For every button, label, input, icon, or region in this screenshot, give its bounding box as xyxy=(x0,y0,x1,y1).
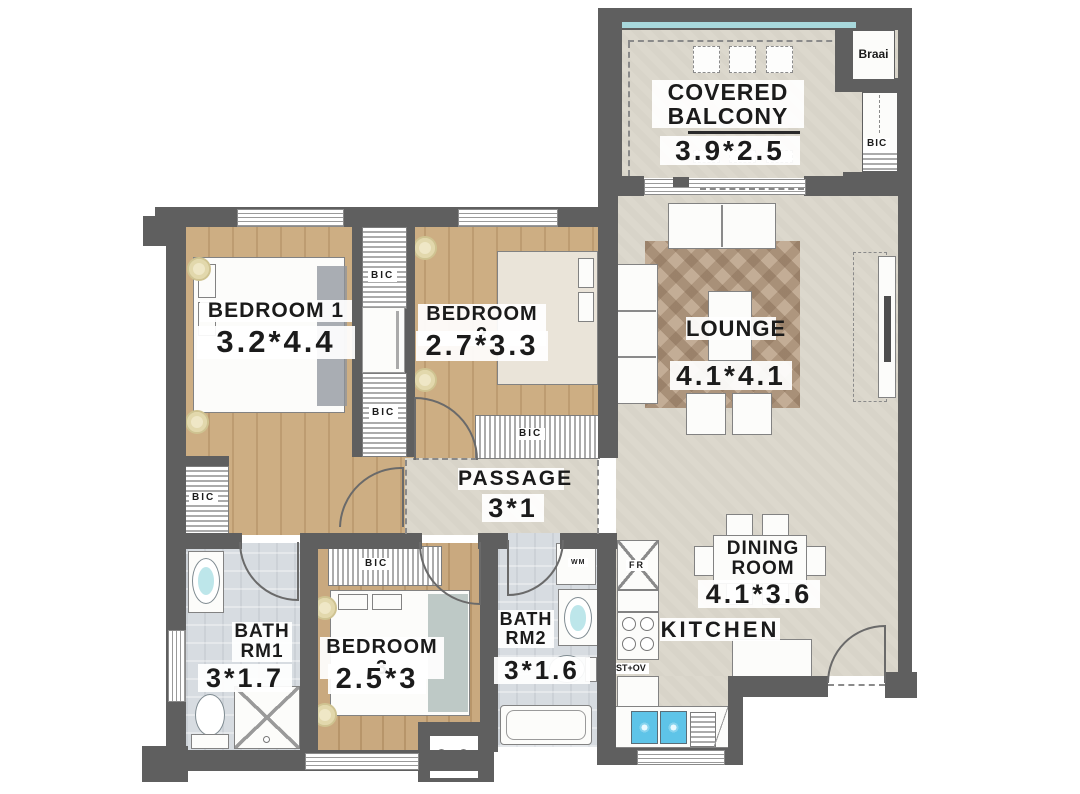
room-dims-bedroom2: 2.7*3.3 xyxy=(416,331,548,361)
room-label-dining: DINING ROOM xyxy=(722,539,804,579)
room-label-lounge: LOUNGE xyxy=(686,317,776,340)
pillow-icon xyxy=(578,258,594,288)
ceiling-light-icon xyxy=(185,410,209,434)
room-label-bath2: BATH RM2 xyxy=(498,610,554,648)
wall-segment xyxy=(835,78,898,92)
bic-cupboard xyxy=(362,227,407,309)
entrance-cabinet-icon xyxy=(732,639,812,677)
balcony-stool-icon xyxy=(766,46,793,73)
floor-plan: FR ST+OV BIC BIC BIC BIC BIC xyxy=(0,0,1080,794)
glazing-strip xyxy=(622,22,856,28)
pillow-icon xyxy=(338,594,368,610)
wall-segment xyxy=(598,196,618,458)
ottoman-icon xyxy=(686,393,726,435)
toilet-icon xyxy=(195,694,225,736)
pillow-icon xyxy=(372,594,402,610)
wall-segment xyxy=(835,30,852,80)
wall-segment xyxy=(598,176,644,196)
room-dims-bedroom3: 2.5*3 xyxy=(328,664,426,694)
kitchen-counter xyxy=(617,590,659,612)
basin-icon xyxy=(564,597,592,639)
room-dims-bath1: 3*1.7 xyxy=(198,664,292,692)
window xyxy=(237,209,344,227)
room-dims-bath2: 3*1.6 xyxy=(494,657,590,684)
label-underline xyxy=(688,131,800,134)
braai-label: Braai xyxy=(852,48,895,61)
balcony-slider-dashed xyxy=(700,188,804,190)
room-label-bedroom1: BEDROOM 1 xyxy=(200,300,352,322)
wall-segment xyxy=(184,456,229,466)
bathtub-inner xyxy=(506,710,586,740)
room-dims-dining: 4.1*3.6 xyxy=(698,580,820,608)
room-dims-bedroom1: 3.2*4.4 xyxy=(197,326,355,359)
ceiling-light-icon xyxy=(187,257,211,281)
bic-dashed-line xyxy=(879,95,880,133)
wall-segment xyxy=(166,533,242,549)
dining-name-line1: DINING xyxy=(722,539,804,559)
stove-burner-icon xyxy=(640,617,654,631)
balcony-boundary-dashed xyxy=(628,40,852,42)
washing-machine-label: WM xyxy=(568,558,588,567)
wall-segment xyxy=(300,533,422,549)
balcony-name-line1: COVERED xyxy=(652,80,804,104)
bic-label: BIC xyxy=(516,428,545,440)
kitchen-counter xyxy=(617,676,659,708)
stove-label: ST+OV xyxy=(613,663,649,674)
balcony-boundary-dashed xyxy=(628,42,630,176)
wall-segment xyxy=(480,533,498,752)
basin-icon xyxy=(192,558,220,604)
ceiling-light-icon xyxy=(413,368,437,392)
bic-label: BIC xyxy=(368,270,397,282)
window xyxy=(168,630,186,702)
room-label-kitchen: KITCHEN xyxy=(660,618,780,641)
sofa-left-divider xyxy=(614,310,656,312)
window xyxy=(637,750,725,765)
sofa-left-icon xyxy=(612,264,658,404)
sofa-top-divider xyxy=(721,205,723,247)
balcony-name-line2: BALCONY xyxy=(652,104,804,128)
stove-burner-icon xyxy=(640,637,654,651)
bic-label: BIC xyxy=(369,407,398,419)
fridge-label: FR xyxy=(626,560,648,571)
room-dims-balcony: 3.9*2.5 xyxy=(660,136,800,165)
stove-burner-icon xyxy=(622,637,636,651)
counter-corner xyxy=(714,707,728,747)
kitchen-sink-icon xyxy=(631,711,658,744)
wall-segment xyxy=(728,676,828,697)
tv-icon xyxy=(884,296,891,362)
window xyxy=(305,753,419,770)
kitchen-sink-icon xyxy=(660,711,687,744)
bath1-name-line1: BATH xyxy=(232,622,292,642)
bic-shelves xyxy=(863,150,897,171)
bath1-name-line2: RM1 xyxy=(232,642,292,662)
room-dims-passage: 3*1 xyxy=(482,494,544,522)
dish-rack-icon xyxy=(690,712,716,747)
bic-label: BIC xyxy=(864,138,890,150)
bic-label: BIC xyxy=(362,558,391,570)
bic-label: BIC xyxy=(189,492,218,504)
dining-name-line2: ROOM xyxy=(722,559,804,579)
balcony-stool-icon xyxy=(693,46,720,73)
balcony-stool-icon xyxy=(729,46,756,73)
wall-segment xyxy=(898,28,912,678)
toilet-tank-icon xyxy=(191,734,229,749)
opening-dashed xyxy=(413,458,477,460)
ceiling-light-icon xyxy=(413,236,437,260)
room-dims-lounge: 4.1*4.1 xyxy=(670,361,792,390)
sofa-left-divider xyxy=(614,356,656,358)
bath2-name-line1: BATH xyxy=(498,610,554,629)
shower-drain-icon xyxy=(263,736,270,743)
room-label-passage: PASSAGE xyxy=(458,468,564,490)
wall-segment xyxy=(843,172,912,196)
opening-dashed xyxy=(405,460,407,534)
bath2-name-line2: RM2 xyxy=(498,629,554,648)
entrance-threshold-dashed xyxy=(828,684,885,686)
ottoman-icon xyxy=(732,393,772,435)
window xyxy=(458,209,558,227)
bic-mirror-line xyxy=(396,311,399,369)
wall-segment xyxy=(597,533,616,765)
room-label-balcony: COVERED BALCONY xyxy=(652,80,804,128)
stove-burner-icon xyxy=(622,617,636,631)
wall-segment xyxy=(598,30,622,178)
slider-stile xyxy=(673,177,689,187)
opening-dashed xyxy=(597,460,599,534)
pillow-icon xyxy=(578,292,594,322)
room-label-bath1: BATH RM1 xyxy=(232,622,292,662)
sliding-door xyxy=(644,179,806,195)
wall-segment xyxy=(300,545,318,752)
